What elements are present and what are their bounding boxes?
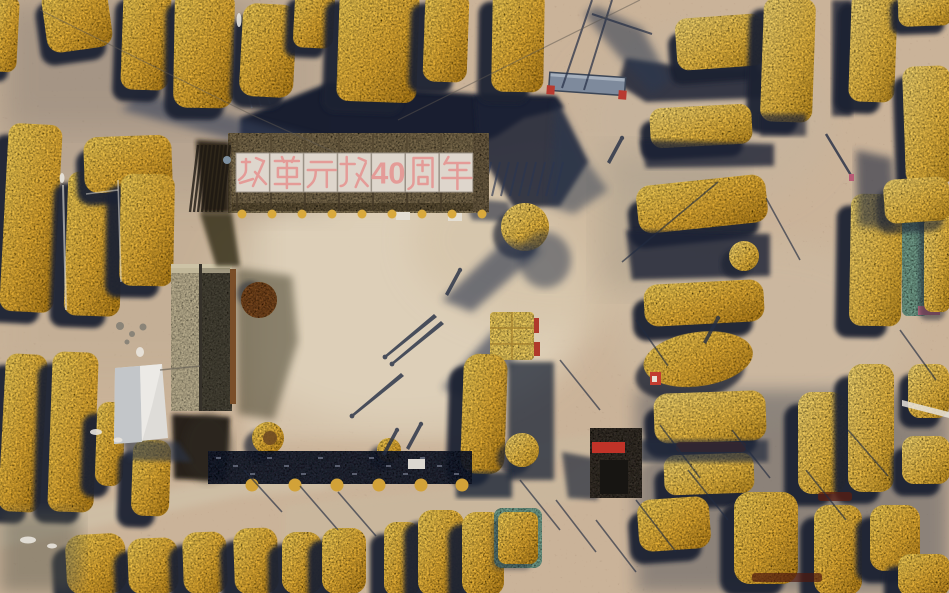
svg-text:40: 40 <box>371 156 405 191</box>
